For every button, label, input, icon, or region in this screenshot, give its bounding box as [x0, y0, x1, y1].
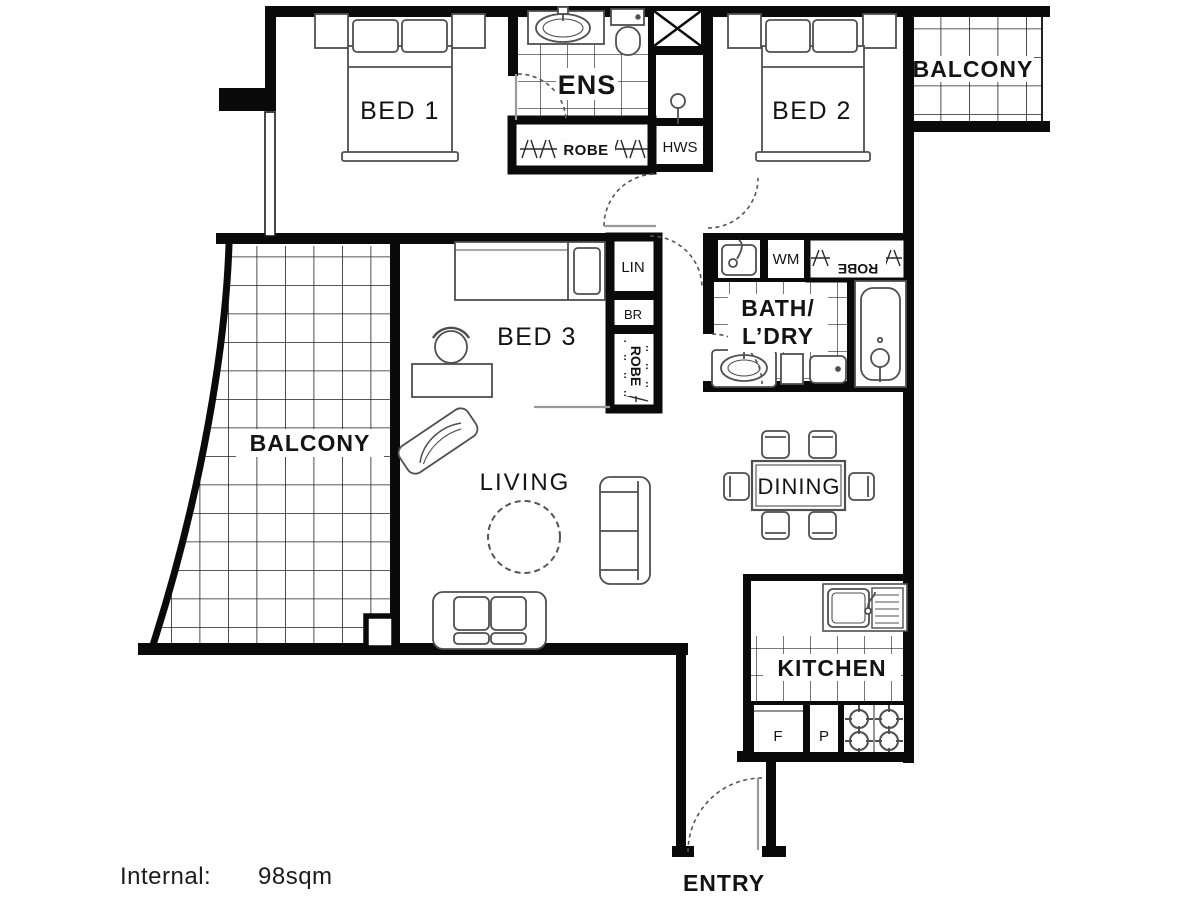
coffee-table: [488, 501, 560, 573]
door-swing-arcs: [518, 74, 762, 852]
dining-chair: [809, 512, 836, 539]
bed2-furniture: [728, 14, 896, 161]
fridge-label: F: [773, 728, 782, 745]
shower-rose-icon: [671, 94, 685, 108]
kitchen-tap-icon: [865, 608, 871, 614]
robe-bed2-label: ROBE: [838, 261, 878, 277]
entry-door-arc: [688, 778, 762, 852]
pantry-label: P: [819, 728, 829, 745]
door-leaves: [516, 74, 758, 850]
wall-entry-right: [766, 751, 776, 857]
hws-label: HWS: [663, 139, 698, 156]
lin-divider: [606, 291, 662, 300]
tv-unit: [395, 405, 481, 477]
robe-bed3-label: ROBE: [628, 346, 644, 386]
kitchen-label: KITCHEN: [777, 655, 886, 681]
balcony-left-label: BALCONY: [250, 430, 371, 456]
ens-label: ENS: [558, 70, 617, 100]
bed3-chair: [435, 331, 467, 363]
ens-toilet-bowl: [616, 27, 640, 55]
floor-plan: BED 1 BED 2 BED 3 ENS ROBE HWS BALCONY B…: [0, 0, 1200, 900]
bed1-door-arc: [604, 174, 656, 226]
bed3-desk: [412, 364, 492, 397]
bed2-label: BED 2: [772, 97, 852, 125]
wm-label: WM: [773, 251, 800, 268]
balcony-pillar: [366, 616, 394, 648]
laundry-tub: [722, 245, 756, 275]
lin-label: LIN: [621, 259, 644, 276]
wall-balcony-living: [390, 233, 400, 652]
wall-hws-bottom: [648, 164, 713, 172]
sofa-bottom: [433, 592, 546, 649]
dining-label: DINING: [758, 474, 841, 499]
sofa-right: [600, 477, 650, 584]
wall-kitchen-bench-top: [743, 574, 908, 581]
br-divider: [606, 325, 662, 334]
wall-bath-left: [703, 233, 714, 334]
bed2-side-table-left: [728, 14, 761, 48]
bed1-pillow-left: [353, 20, 398, 52]
br-label: BR: [624, 307, 642, 322]
wall-stub-left: [219, 88, 276, 111]
bed1-label: BED 1: [360, 97, 440, 125]
dining-chair: [724, 473, 749, 500]
bed2-footboard: [756, 152, 870, 161]
bathtub-tap: [871, 349, 889, 367]
wall-hws-top: [648, 118, 713, 126]
wall-kitchen-left: [743, 574, 751, 762]
dining-chair: [849, 473, 874, 500]
entry-label: ENTRY: [683, 870, 765, 896]
doors: [516, 74, 762, 852]
wall-bath-tub: [847, 279, 855, 387]
wall-entry-right-cap: [762, 846, 786, 857]
kitchen-drainer: [872, 588, 903, 628]
bath-shower-niche: [781, 354, 803, 384]
bed1-pillow-right: [402, 20, 447, 52]
internal-area-label: Internal:: [120, 863, 211, 890]
bed1-footboard: [342, 152, 458, 161]
bed1-side-table-right: [452, 14, 485, 48]
bed2-door-arc: [708, 178, 758, 228]
bed1-furniture: [315, 14, 485, 161]
bath-label-line1: BATH/: [741, 295, 815, 321]
living-furniture: [395, 405, 650, 649]
bed3-label: BED 3: [497, 323, 577, 351]
bath-label-line2: L’DRY: [742, 323, 814, 349]
bed1-window: [265, 112, 275, 236]
bed1-side-table-left: [315, 14, 348, 48]
bed2-pillow-right: [813, 20, 857, 52]
ens-tap-icon: [558, 7, 568, 14]
wall-bottom-living: [138, 643, 688, 655]
dining-chair: [809, 431, 836, 458]
internal-area-value: 98sqm: [258, 863, 333, 890]
wall-entry-left: [676, 643, 686, 857]
wall-entry-left-cap: [672, 846, 694, 857]
dining-chair: [762, 431, 789, 458]
robe-ens-label: ROBE: [563, 142, 608, 159]
balcony-right-label: BALCONY: [913, 56, 1034, 82]
wall-balcony-right-bottom: [903, 121, 1050, 132]
floor-plan-svg: BED 1 BED 2 BED 3 ENS ROBE HWS BALCONY B…: [0, 0, 1200, 900]
bed3-pillow: [574, 248, 600, 294]
living-label: LIVING: [480, 469, 571, 496]
laundry-fixtures: [722, 240, 756, 275]
dining-chair: [762, 512, 789, 539]
bed2-pillow-left: [766, 20, 810, 52]
laundry-tap-icon: [729, 259, 737, 267]
bed2-side-table-right: [863, 14, 896, 48]
bed3-furniture: [412, 242, 605, 397]
wall-bed1-ens: [508, 6, 518, 76]
